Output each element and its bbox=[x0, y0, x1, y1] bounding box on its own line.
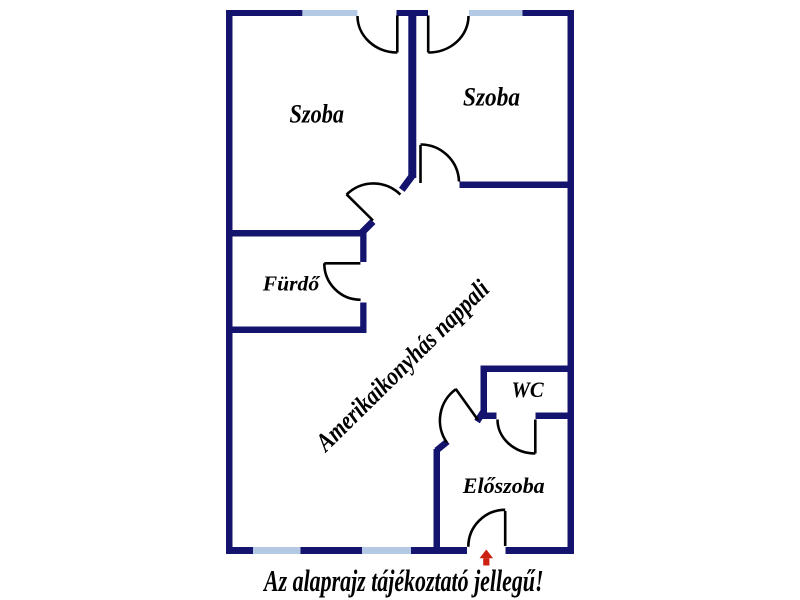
svg-text:Fürdő: Fürdő bbox=[262, 272, 321, 296]
svg-text:Szoba: Szoba bbox=[463, 83, 520, 112]
svg-text:Az alaprajz tájékoztató jelleg: Az alaprajz tájékoztató jellegű! bbox=[263, 563, 544, 598]
svg-text:WC: WC bbox=[512, 377, 545, 402]
svg-text:Szoba: Szoba bbox=[290, 100, 345, 129]
svg-text:Előszoba: Előszoba bbox=[462, 473, 545, 498]
